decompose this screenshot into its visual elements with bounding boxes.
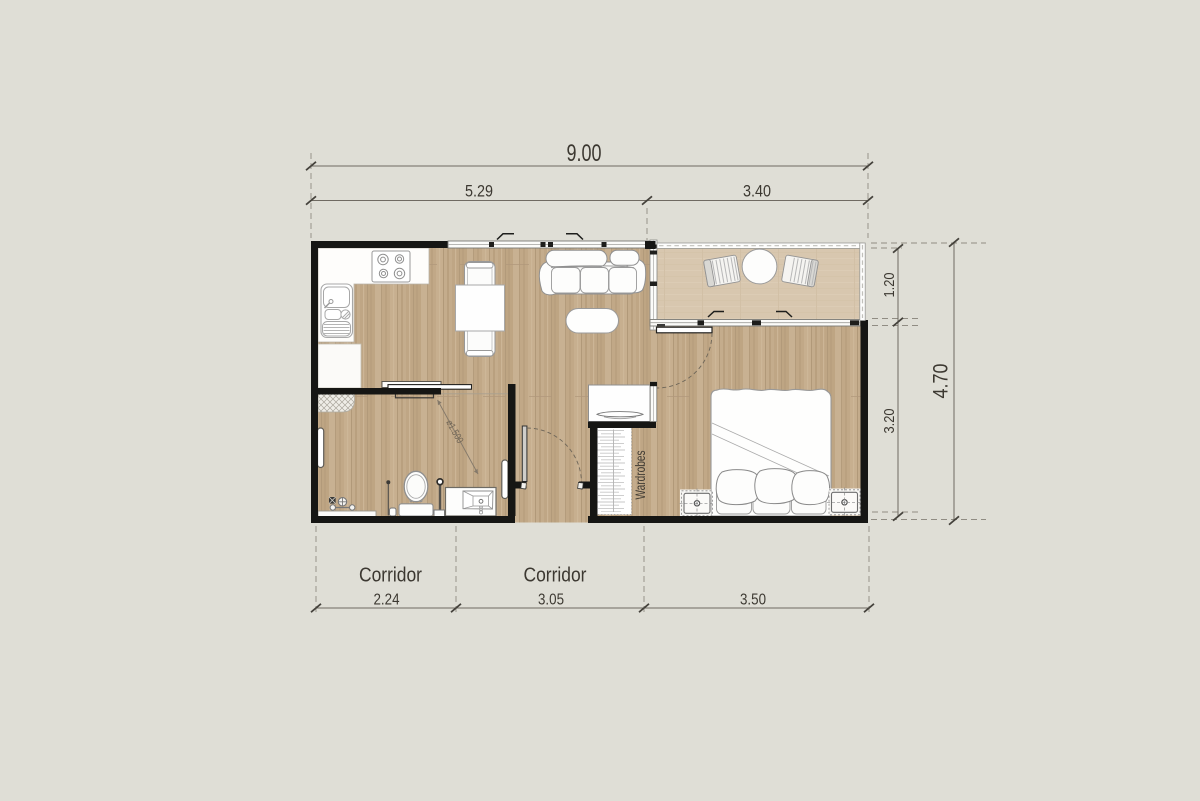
svg-text:4.70: 4.70 bbox=[929, 363, 953, 398]
svg-text:9.00: 9.00 bbox=[567, 140, 602, 167]
svg-text:3.20: 3.20 bbox=[881, 409, 898, 434]
svg-text:Corridor: Corridor bbox=[359, 565, 422, 587]
svg-text:Wardrobes: Wardrobes bbox=[632, 451, 648, 500]
svg-text:3.40: 3.40 bbox=[743, 182, 771, 201]
svg-text:3.50: 3.50 bbox=[740, 592, 766, 609]
svg-text:Corridor: Corridor bbox=[524, 565, 587, 587]
svg-text:5.29: 5.29 bbox=[465, 182, 493, 201]
svg-text:1.20: 1.20 bbox=[881, 273, 898, 298]
svg-text:2.24: 2.24 bbox=[374, 592, 400, 609]
svg-text:3.05: 3.05 bbox=[538, 592, 564, 609]
